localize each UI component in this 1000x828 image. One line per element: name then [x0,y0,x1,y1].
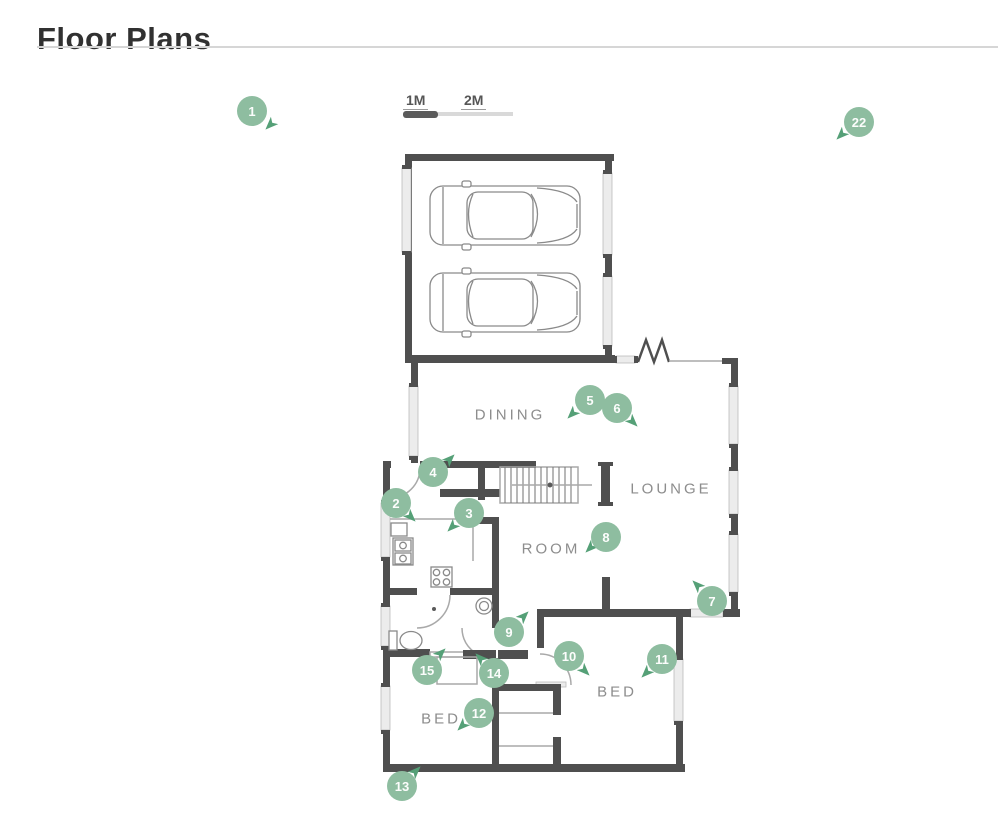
photo-marker[interactable]: 14 [479,658,509,688]
kitchen-cabinet [391,523,407,536]
photo-marker-number: 10 [562,649,576,664]
photo-marker[interactable]: 15 [412,655,442,685]
car-top-view [430,268,580,337]
photo-marker-number: 22 [852,115,866,130]
top-wall-break [613,340,738,364]
photo-marker-number: 3 [465,506,472,521]
closet [437,657,477,684]
photo-marker-number: 2 [392,496,399,511]
bathroom-fixtures [389,598,492,650]
photo-marker[interactable]: 1 [237,96,267,126]
photo-marker[interactable]: 3 [454,498,484,528]
photo-marker-number: 15 [420,663,434,678]
photo-marker[interactable]: 2 [381,488,411,518]
wall-break-icon [638,340,669,362]
photo-marker-number: 11 [655,652,669,667]
photo-marker[interactable]: 11 [647,644,677,674]
bathroom-sink [476,598,492,614]
photo-marker[interactable]: 8 [591,522,621,552]
photo-marker-number: 1 [248,104,255,119]
floor-plan: 1M 2M [0,0,1000,828]
stairs [505,467,592,503]
photo-marker-number: 8 [602,530,609,545]
photo-marker-number: 14 [487,666,501,681]
photo-marker-number: 13 [395,779,409,794]
photo-marker[interactable]: 5 [575,385,605,415]
photo-marker[interactable]: 13 [387,771,417,801]
photo-marker-number: 4 [429,465,436,480]
photo-marker[interactable]: 10 [554,641,584,671]
photo-marker[interactable]: 9 [494,617,524,647]
photo-marker-number: 12 [472,706,486,721]
stove [431,567,452,587]
photo-marker-number: 7 [708,594,715,609]
door-arc [417,595,450,628]
kitchen-sink [393,538,413,565]
photo-marker[interactable]: 6 [602,393,632,423]
car-top-view [430,181,580,250]
photo-marker-number: 5 [586,393,593,408]
photo-marker[interactable]: 7 [697,586,727,616]
photo-marker-number: 6 [613,401,620,416]
photo-marker[interactable]: 4 [418,457,448,487]
photo-marker-number: 9 [505,625,512,640]
sliding-door [498,650,528,659]
kitchen-fixtures [390,519,473,587]
toilet [389,631,422,650]
photo-marker[interactable]: 12 [464,698,494,728]
photo-marker[interactable]: 22 [844,107,874,137]
